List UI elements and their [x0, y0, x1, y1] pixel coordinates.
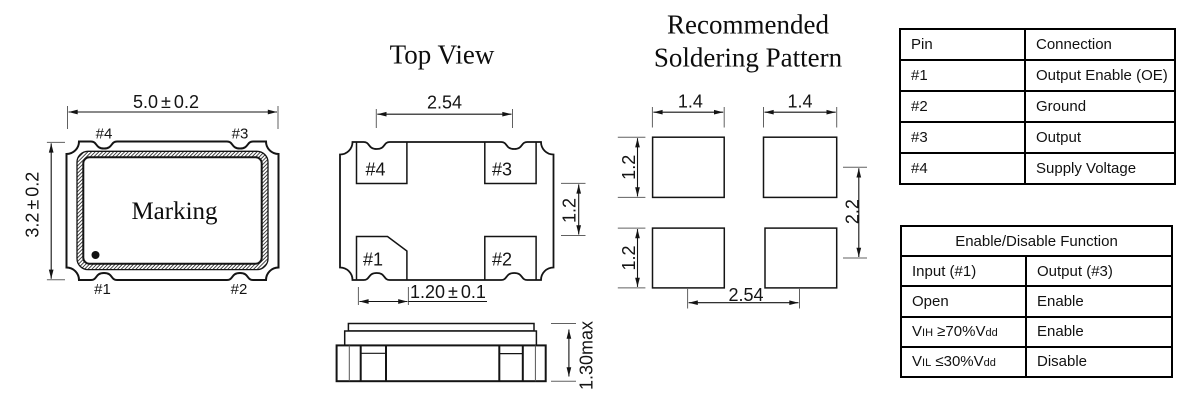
svg-text:Top View: Top View [390, 40, 495, 70]
svg-text:1.4: 1.4 [678, 92, 703, 112]
svg-text:#3: #3 [232, 126, 249, 143]
svg-text:3.2 ± 0.2: 3.2 ± 0.2 [23, 172, 43, 238]
svg-text:#1: #1 [94, 281, 111, 298]
svg-text:#3: #3 [492, 160, 512, 180]
svg-text:#4: #4 [365, 160, 385, 180]
svg-text:1.2: 1.2 [619, 245, 639, 270]
svg-text:1.2: 1.2 [560, 198, 580, 223]
svg-text:Marking: Marking [131, 198, 218, 225]
svg-text:1.30max: 1.30max [577, 321, 597, 390]
svg-text:2.54: 2.54 [427, 93, 462, 113]
svg-text:#2: #2 [492, 250, 512, 270]
svg-text:#1: #1 [363, 250, 383, 270]
svg-text:#4: #4 [96, 126, 113, 143]
svg-text:1.4: 1.4 [787, 92, 812, 112]
svg-text:Recommended: Recommended [667, 10, 829, 40]
svg-text:2.54: 2.54 [728, 285, 763, 305]
svg-text:5.0 ± 0.2: 5.0 ± 0.2 [133, 92, 199, 112]
svg-text:1.2: 1.2 [619, 155, 639, 180]
svg-text:#2: #2 [231, 281, 248, 298]
svg-text:Soldering Pattern: Soldering Pattern [654, 43, 843, 73]
svg-text:2.2: 2.2 [843, 199, 863, 224]
svg-text:1.20 ± 0.1: 1.20 ± 0.1 [410, 282, 486, 302]
